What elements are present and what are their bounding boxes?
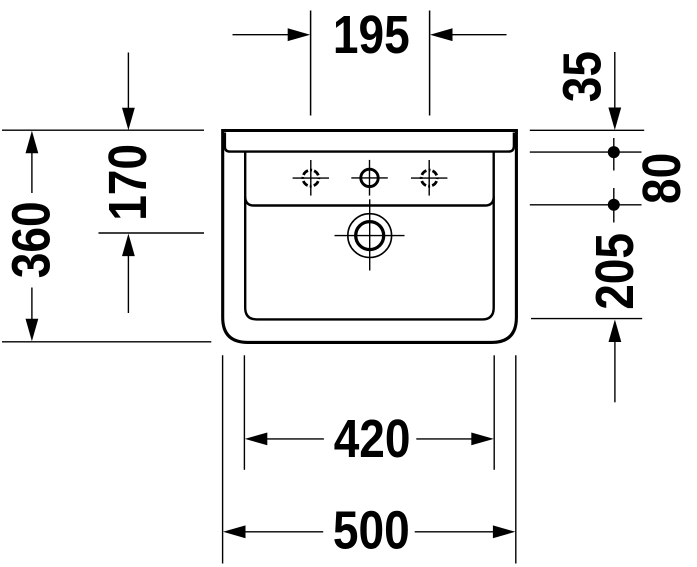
svg-text:80: 80 <box>632 153 692 204</box>
svg-text:195: 195 <box>333 5 410 65</box>
svg-text:170: 170 <box>98 144 158 221</box>
svg-text:360: 360 <box>1 201 61 278</box>
svg-text:420: 420 <box>334 409 411 469</box>
svg-text:205: 205 <box>585 233 645 310</box>
svg-text:500: 500 <box>333 500 410 560</box>
svg-text:35: 35 <box>553 51 613 102</box>
